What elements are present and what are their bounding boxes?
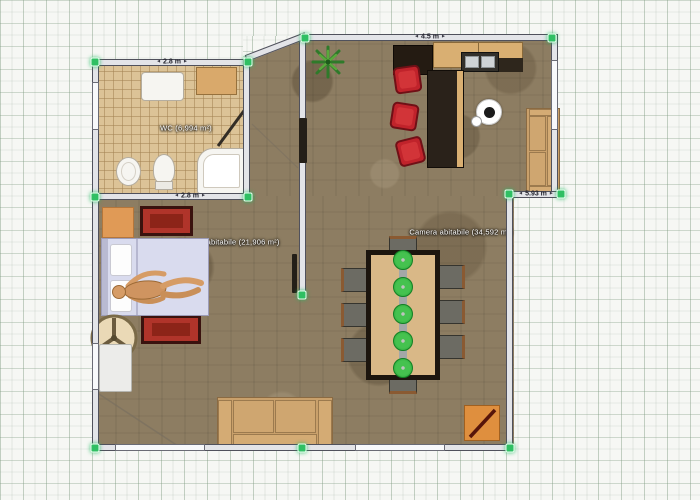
plant[interactable] [311,45,345,79]
selection-handle[interactable] [91,58,100,67]
red-rug-top[interactable] [140,206,193,236]
measurement-top-wall: 4.5 m [414,34,446,41]
red-rug-bottom[interactable] [141,315,201,344]
rug-field [143,209,190,233]
measurement-wc-bottom: 2.8 m [174,193,206,200]
dining-chair[interactable] [439,335,465,359]
bathtub[interactable] [197,148,246,194]
bar-stool[interactable] [392,64,422,94]
selection-handle[interactable] [244,58,253,67]
window-left-bedroom[interactable] [92,343,99,390]
dining-chair[interactable] [341,268,367,292]
sofa-seat [529,116,546,151]
selection-handle[interactable] [505,190,514,199]
bathroom-cabinet[interactable] [196,67,237,95]
kitchen-counter-right[interactable] [499,58,523,72]
selection-handle[interactable] [298,444,307,453]
window-left-wc[interactable] [92,82,99,130]
floorplan-canvas[interactable]: WC (6,994 m²) Camera abitabile (21,906 m… [0,0,700,500]
sofa-back-cushion [275,400,316,433]
kitchen-sink[interactable] [461,52,499,72]
green-plate[interactable] [393,304,413,324]
sofa-arm [318,400,332,446]
selection-handle[interactable] [301,34,310,43]
sofa-seat [529,152,546,186]
measurement-wc-top: 2.8 m [156,59,188,66]
rug-field [144,318,198,341]
selection-handle[interactable] [298,291,307,300]
wall-wc-right[interactable] [243,59,250,200]
bar-stool[interactable] [389,101,420,132]
sofa-back-cushion [233,400,274,433]
green-plate[interactable] [393,358,413,378]
dining-chair[interactable] [341,303,367,327]
wall-wc-bottom[interactable] [92,193,250,200]
window-right-upper[interactable] [551,60,558,130]
stool-cushion [400,141,421,162]
washbasin[interactable] [141,72,184,101]
bidet-bowl [121,162,136,181]
wall-right-lower[interactable] [506,191,513,451]
dining-chair[interactable] [439,265,465,289]
entry-door-leaf[interactable] [299,118,307,163]
bidet[interactable] [116,157,141,186]
window-bottom-right[interactable] [355,444,445,451]
decor-plate-center [484,107,495,118]
decor-cup[interactable] [471,116,482,127]
mannequin-figure[interactable] [108,250,208,310]
corner-unit-diagonal [465,406,501,442]
selection-handle[interactable] [506,444,515,453]
sink-basin [465,56,479,68]
room-label-living: Camera abitabile (34,592 m²) [409,228,512,237]
bedroom-door-leaf[interactable] [292,254,297,293]
island-wood-edge [457,71,463,167]
selection-handle[interactable] [91,193,100,202]
dining-chair[interactable] [439,300,465,324]
room-label-wc: WC (6,994 m²) [160,124,212,133]
dining-chair[interactable] [341,338,367,362]
window-bottom-left[interactable] [115,444,205,451]
dining-chair[interactable] [389,378,417,394]
kitchen-island[interactable] [427,70,464,168]
selection-handle[interactable] [548,34,557,43]
selection-handle[interactable] [244,193,253,202]
rug-center [150,214,183,228]
wall-interior-vertical[interactable] [299,36,306,296]
rug-center [152,323,190,337]
dresser[interactable] [102,207,134,238]
bathtub-rim [203,154,240,188]
toilet-tank[interactable] [155,181,173,190]
corner-unit[interactable] [464,405,500,441]
green-plate[interactable] [393,250,413,270]
measurement-right-step: 5.93 m [518,191,554,198]
stool-cushion [395,107,414,126]
stool-cushion [398,70,417,89]
green-plate[interactable] [393,277,413,297]
selection-handle[interactable] [91,444,100,453]
sofa-arm [218,400,232,446]
wardrobe[interactable] [99,344,132,392]
sink-basin [481,56,495,68]
selection-handle[interactable] [557,190,566,199]
green-plate[interactable] [393,331,413,351]
toilet[interactable] [153,154,175,184]
bottom-sofa[interactable] [217,397,333,449]
